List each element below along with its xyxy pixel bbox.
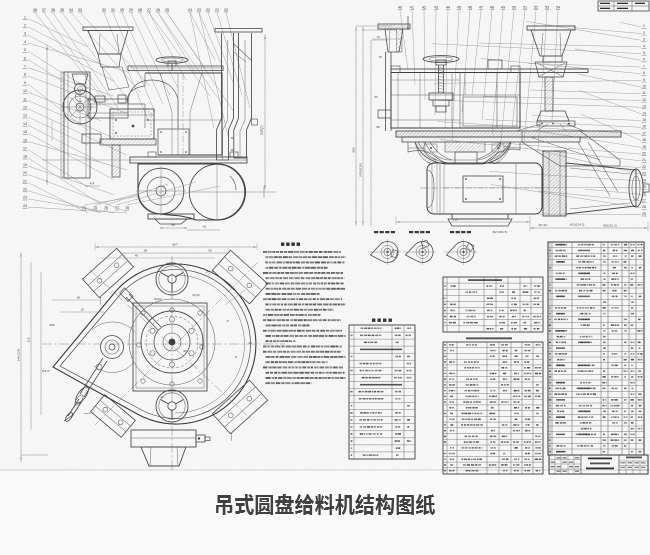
svg-text:1: 1 (643, 24, 645, 28)
svg-text:Φ5: Φ5 (183, 349, 187, 353)
svg-text:75: 75 (93, 206, 97, 210)
svg-text:29: 29 (642, 212, 646, 216)
svg-text:21: 21 (215, 8, 219, 12)
svg-text:525(?): 525(?) (260, 125, 264, 134)
svg-text:(42)(124.5): (42)(124.5) (570, 223, 585, 227)
svg-text:15: 15 (23, 130, 27, 134)
svg-text:11: 11 (642, 91, 646, 95)
svg-text:34: 34 (69, 8, 73, 12)
svg-text:21: 21 (642, 158, 646, 162)
svg-text:1: 1 (24, 15, 26, 19)
svg-text:20: 20 (642, 152, 646, 156)
svg-text:41: 41 (410, 6, 414, 10)
svg-text:43: 43 (434, 6, 438, 10)
svg-text:22: 22 (206, 8, 210, 12)
svg-text:80?: 80? (172, 243, 177, 247)
svg-text:22: 22 (23, 188, 27, 192)
svg-text:2: 2 (643, 31, 645, 35)
svg-text:348 (325): 348 (325) (17, 349, 21, 362)
svg-text:25: 25 (248, 341, 252, 345)
svg-text:4: 4 (24, 40, 26, 44)
svg-text:40: 40 (160, 395, 164, 399)
svg-text:48: 48 (490, 6, 494, 10)
svg-text:78: 78 (378, 55, 382, 59)
svg-text:24: 24 (23, 204, 27, 208)
svg-text:9(0): 9(0) (352, 147, 356, 152)
svg-text:76: 76 (104, 206, 108, 210)
svg-text:20: 20 (23, 171, 27, 175)
svg-text:32: 32 (102, 8, 106, 12)
svg-text:24: 24 (188, 8, 192, 12)
svg-text:6: 6 (643, 58, 645, 62)
svg-text:40: 40 (398, 6, 402, 10)
svg-text:23: 23 (642, 172, 646, 176)
svg-text:10: 10 (642, 85, 646, 89)
svg-text:11: 11 (23, 97, 27, 101)
svg-text:6: 6 (24, 56, 26, 60)
svg-text:47: 47 (479, 6, 483, 10)
svg-text:12: 12 (23, 106, 27, 110)
svg-text:48 (11): 48 (11) (538, 223, 547, 227)
svg-text:51: 51 (523, 6, 527, 10)
svg-text:50: 50 (208, 249, 212, 253)
svg-text:54: 54 (556, 6, 560, 10)
svg-text:28: 28 (642, 205, 646, 209)
svg-text:90: 90 (374, 95, 378, 99)
svg-text:5: 5 (24, 48, 26, 52)
svg-text:22: 22 (642, 165, 646, 169)
svg-text:2478(128): 2478(128) (359, 163, 363, 177)
svg-text:8: 8 (24, 73, 26, 77)
svg-text:ΦZ(261.5): ΦZ(261.5) (603, 224, 617, 228)
svg-text:35: 35 (60, 8, 64, 12)
svg-text:3: 3 (24, 32, 26, 36)
svg-text:17: 17 (23, 147, 27, 151)
svg-text:77: 77 (115, 206, 119, 210)
svg-text:49: 49 (501, 6, 505, 10)
svg-text:.48: .48 (76, 296, 80, 300)
svg-text:17: 17 (642, 131, 646, 135)
svg-text:118.47: 118.47 (42, 369, 51, 373)
svg-text:23: 23 (197, 8, 201, 12)
svg-text:15: 15 (642, 118, 646, 122)
svg-text:13: 13 (642, 105, 646, 109)
svg-text:27: 27 (147, 8, 151, 12)
svg-text:46: 46 (468, 6, 472, 10)
svg-text:44: 44 (446, 6, 450, 10)
svg-text:1.00: 1.00 (452, 218, 458, 222)
svg-text:18: 18 (642, 138, 646, 142)
svg-text:9: 9 (24, 81, 26, 85)
svg-text:28: 28 (138, 8, 142, 12)
svg-text:45: 45 (457, 6, 461, 10)
svg-text:42: 42 (422, 6, 426, 10)
svg-text:+0: +0 (202, 225, 206, 229)
svg-text:13: 13 (23, 114, 27, 118)
svg-text:16: 16 (642, 125, 646, 129)
svg-text:.18: .18 (80, 308, 84, 312)
svg-text:10: 10 (23, 89, 27, 93)
svg-text:78: 78 (125, 206, 129, 210)
svg-text:4.4: 4.4 (90, 182, 95, 186)
svg-text:16: 16 (23, 138, 27, 142)
svg-text:31: 31 (111, 8, 115, 12)
svg-text:7: 7 (643, 64, 645, 68)
svg-text:14: 14 (642, 111, 646, 115)
svg-text:70: 70 (376, 35, 380, 39)
svg-text:21: 21 (23, 179, 27, 183)
svg-text:19: 19 (642, 145, 646, 149)
svg-text:8: 8 (643, 71, 645, 75)
svg-text:118: 118 (27, 337, 31, 342)
svg-text:5(1)0: 5(1)0 (192, 293, 199, 297)
svg-text:.48: .48 (134, 254, 138, 258)
svg-text:5: 5 (643, 51, 645, 55)
svg-text:3: 3 (643, 38, 645, 42)
svg-text:33: 33 (78, 8, 82, 12)
svg-text:29: 29 (129, 8, 133, 12)
svg-text:7: 7 (24, 65, 26, 69)
svg-text:Φ98: Φ98 (49, 323, 55, 327)
svg-text:14: 14 (23, 122, 27, 126)
svg-text:ΦZ (Z61.5): ΦZ (Z61.5) (493, 230, 508, 234)
svg-text:20: 20 (224, 8, 228, 12)
svg-text:4: 4 (643, 44, 645, 48)
svg-text:30: 30 (120, 8, 124, 12)
svg-text:25: 25 (165, 8, 169, 12)
svg-text:.38: .38 (143, 249, 148, 253)
svg-text:37: 37 (42, 8, 46, 12)
svg-text:36: 36 (51, 8, 55, 12)
svg-text:18: 18 (23, 155, 27, 159)
svg-text:Φ0: Φ0 (171, 223, 176, 227)
svg-text:26: 26 (156, 8, 160, 12)
svg-text:9: 9 (643, 78, 645, 82)
svg-text:50: 50 (512, 6, 516, 10)
svg-text:38: 38 (33, 8, 37, 12)
svg-text:52: 52 (534, 6, 538, 10)
svg-text:98: 98 (376, 125, 380, 129)
svg-text:23: 23 (23, 196, 27, 200)
svg-text:12: 12 (642, 98, 646, 102)
svg-text:27: 27 (642, 198, 646, 202)
svg-text:74: 74 (82, 206, 86, 210)
svg-text:19: 19 (23, 163, 27, 167)
svg-text:53: 53 (545, 6, 549, 10)
svg-text:Φ(2)2: Φ(2)2 (154, 297, 162, 301)
svg-text:2: 2 (24, 24, 26, 28)
